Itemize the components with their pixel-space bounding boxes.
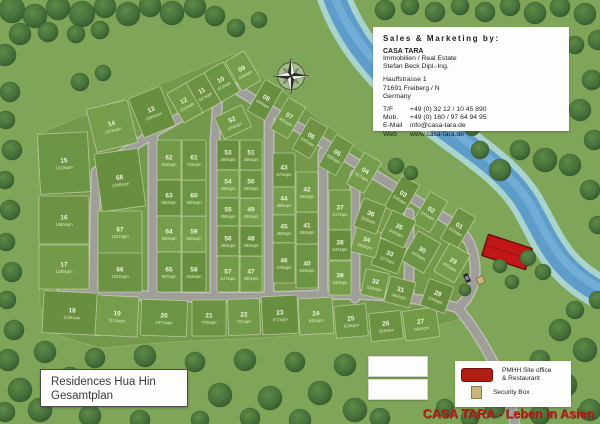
svg-text:550sqm: 550sqm	[162, 236, 177, 241]
svg-text:1971sqm: 1971sqm	[155, 320, 173, 326]
contact-row-web: Web www.casa-tara.de	[383, 131, 559, 139]
svg-text:41: 41	[303, 223, 311, 230]
lot-24[interactable]: 24642sqm	[298, 297, 334, 335]
lot-17[interactable]: 171185sqm	[39, 245, 89, 289]
lot-42[interactable]: 42685sqm	[296, 172, 318, 212]
lot-45[interactable]: 45456sqm	[273, 215, 295, 243]
lot-46[interactable]: 46476sqm	[273, 243, 295, 283]
lot-38[interactable]: 38541sqm	[329, 230, 351, 260]
svg-text:39: 39	[336, 273, 344, 280]
lot-23[interactable]: 23677sqm	[261, 295, 299, 335]
svg-text:729sqm: 729sqm	[187, 162, 202, 167]
svg-text:47: 47	[247, 269, 255, 276]
svg-text:58: 58	[190, 267, 198, 274]
lot-37[interactable]: 37617sqm	[329, 190, 351, 230]
svg-text:24: 24	[312, 310, 320, 317]
svg-text:818sqm: 818sqm	[162, 162, 177, 167]
svg-text:1210sqm: 1210sqm	[55, 165, 73, 171]
svg-text:51: 51	[247, 150, 255, 157]
svg-text:642sqm: 642sqm	[309, 318, 325, 324]
lot-59[interactable]: 59550sqm	[182, 216, 206, 252]
lot-15[interactable]: 151210sqm	[37, 132, 90, 195]
svg-text:779sqm: 779sqm	[202, 320, 217, 325]
svg-text:57: 57	[224, 269, 232, 276]
svg-text:1034sqm: 1034sqm	[111, 274, 129, 279]
svg-text:65: 65	[165, 267, 173, 274]
blank-panel-2	[368, 379, 428, 400]
svg-text:18: 18	[68, 307, 76, 314]
lot-48[interactable]: 48455sqm	[240, 226, 262, 256]
lot-66[interactable]: 661034sqm	[98, 252, 142, 292]
svg-text:22: 22	[240, 311, 248, 318]
lot-54[interactable]: 54456sqm	[217, 170, 239, 198]
sales-heading: Sales & Marketing by:	[383, 34, 559, 43]
svg-text:1156sqm: 1156sqm	[63, 315, 81, 321]
contact-value: +49 (0) 160 / 97 64 94 95	[410, 114, 487, 122]
legend-label-security: Security Box	[493, 389, 530, 397]
site-plan-canvas: 01532sqm02545sqm03546sqm04567sqm05599sqm…	[0, 0, 600, 424]
svg-text:19: 19	[113, 310, 121, 317]
contact-label: E-Mail	[383, 122, 410, 130]
svg-text:66: 66	[116, 267, 124, 274]
svg-text:26: 26	[382, 320, 390, 328]
svg-text:21: 21	[205, 313, 213, 320]
lot-67[interactable]: 671037sqm	[98, 211, 142, 253]
svg-text:46: 46	[280, 258, 288, 265]
lot-39[interactable]: 39533sqm	[329, 261, 351, 295]
svg-text:550sqm: 550sqm	[162, 200, 177, 205]
contact-row-phone: T/F +49 (0) 32 12 / 10 45 890	[383, 106, 559, 114]
svg-text:465sqm: 465sqm	[244, 276, 259, 281]
sales-marketing-panel: Sales & Marketing by: CASA TARA Immobili…	[373, 27, 569, 131]
lot-27[interactable]: 27564sqm	[402, 307, 440, 341]
svg-text:45: 45	[280, 224, 288, 231]
contact-row-email: E-Mail info@casa-tara.de	[383, 122, 559, 130]
contact-value[interactable]: info@casa-tara.de	[410, 122, 466, 130]
lot-26[interactable]: 26565sqm	[369, 310, 404, 341]
lot-68[interactable]: 681240sqm	[94, 148, 146, 212]
svg-text:1037sqm: 1037sqm	[111, 234, 129, 239]
contact-label: T/F	[383, 106, 410, 114]
address-line1: Hauffstrasse 1	[383, 76, 559, 84]
address-line3: Germany	[383, 93, 559, 101]
lot-62[interactable]: 62818sqm	[157, 140, 181, 180]
legend-panel: PMHH Site office & Restaurant Security B…	[455, 361, 571, 407]
lot-63[interactable]: 63550sqm	[157, 180, 181, 216]
lot-21[interactable]: 21779sqm	[192, 300, 226, 336]
svg-text:62: 62	[165, 155, 173, 162]
lot-60[interactable]: 60550sqm	[182, 180, 206, 216]
svg-text:56: 56	[224, 236, 232, 243]
lot-16[interactable]: 161860sqm	[39, 196, 89, 244]
lot-50[interactable]: 50455sqm	[240, 170, 262, 198]
svg-text:455sqm: 455sqm	[244, 214, 259, 219]
svg-text:25: 25	[347, 315, 355, 323]
svg-text:44: 44	[280, 196, 288, 203]
svg-text:541sqm: 541sqm	[333, 247, 348, 252]
address-line2: 71691 Freiberg / N	[383, 85, 559, 93]
lot-25[interactable]: 25616sqm	[334, 304, 369, 339]
svg-text:1113sqm: 1113sqm	[108, 318, 125, 324]
svg-text:456sqm: 456sqm	[221, 186, 236, 191]
svg-text:17: 17	[60, 262, 68, 269]
company-line2: Stefan Beck Dipl.-Ing.	[383, 63, 559, 71]
svg-text:20: 20	[160, 312, 168, 319]
svg-text:533sqm: 533sqm	[333, 280, 348, 285]
company-name: CASA TARA	[383, 48, 559, 55]
lot-18[interactable]: 181156sqm	[42, 291, 102, 336]
svg-text:67: 67	[116, 227, 124, 234]
lot-65[interactable]: 65567sqm	[157, 252, 181, 292]
svg-text:61: 61	[190, 155, 198, 162]
svg-text:567sqm: 567sqm	[162, 274, 177, 279]
svg-text:456sqm: 456sqm	[221, 214, 236, 219]
lot-57[interactable]: 57547sqm	[217, 256, 239, 292]
svg-text:489sqm: 489sqm	[221, 243, 236, 248]
svg-text:685sqm: 685sqm	[300, 194, 315, 199]
lot-43[interactable]: 43574sqm	[273, 153, 295, 187]
svg-text:550sqm: 550sqm	[187, 200, 202, 205]
svg-text:16: 16	[60, 215, 68, 222]
svg-text:63: 63	[165, 193, 173, 200]
svg-text:476sqm: 476sqm	[277, 265, 292, 270]
lot-49[interactable]: 49455sqm	[240, 198, 262, 226]
contact-label: Web	[383, 131, 410, 139]
svg-text:37: 37	[336, 205, 344, 212]
legend-item-security-box: Security Box	[461, 386, 565, 399]
svg-text:547sqm: 547sqm	[221, 276, 236, 281]
lot-44[interactable]: 44456sqm	[273, 187, 295, 215]
company-line1: Immobilien / Real Estate	[383, 55, 559, 63]
svg-text:55: 55	[224, 207, 232, 214]
svg-text:53: 53	[224, 150, 232, 157]
svg-text:456sqm: 456sqm	[277, 231, 292, 236]
svg-text:574sqm: 574sqm	[277, 172, 292, 177]
plan-title-line2: Gesamtplan	[51, 389, 177, 403]
svg-text:42: 42	[303, 187, 311, 194]
lot-47[interactable]: 47465sqm	[240, 256, 262, 292]
svg-text:456sqm: 456sqm	[277, 203, 292, 208]
lot-51[interactable]: 51455sqm	[240, 140, 262, 170]
lot-53[interactable]: 53456sqm	[217, 140, 239, 170]
svg-text:40: 40	[303, 261, 311, 268]
svg-text:48: 48	[247, 236, 255, 243]
contact-value[interactable]: www.casa-tara.de	[410, 131, 464, 139]
lot-19[interactable]: 191113sqm	[95, 295, 139, 337]
svg-text:49: 49	[247, 207, 255, 214]
svg-text:618sqm: 618sqm	[187, 274, 202, 279]
svg-text:550sqm: 550sqm	[187, 236, 202, 241]
svg-text:15: 15	[60, 157, 68, 164]
svg-text:23: 23	[276, 309, 284, 316]
legend-item-site-office: PMHH Site office & Restaurant	[461, 367, 565, 382]
lot-56[interactable]: 56489sqm	[217, 226, 239, 256]
svg-text:455sqm: 455sqm	[244, 243, 259, 248]
lot-55[interactable]: 55456sqm	[217, 198, 239, 226]
lot-32[interactable]: 32510sqm	[361, 269, 390, 299]
site-office-swatch	[461, 368, 493, 382]
svg-text:1185sqm: 1185sqm	[56, 269, 73, 274]
lot-41[interactable]: 41556sqm	[296, 212, 318, 244]
plan-title-line1: Residences Hua Hin	[51, 375, 177, 389]
lot-22[interactable]: 22721sqm	[227, 298, 260, 335]
svg-text:54: 54	[224, 179, 232, 186]
lot-58[interactable]: 58618sqm	[182, 252, 206, 292]
svg-text:455sqm: 455sqm	[244, 186, 259, 191]
svg-text:64: 64	[165, 229, 173, 236]
legend-label-site-office: PMHH Site office & Restaurant	[502, 367, 551, 382]
contact-row-mobile: Mob. +49 (0) 160 / 97 64 94 95	[383, 114, 559, 122]
svg-text:455sqm: 455sqm	[244, 157, 259, 162]
contact-value: +49 (0) 32 12 / 10 45 890	[410, 106, 487, 114]
svg-text:59: 59	[190, 229, 198, 236]
svg-text:43: 43	[280, 165, 288, 172]
svg-text:617sqm: 617sqm	[333, 212, 348, 217]
blank-panel-1	[368, 356, 428, 377]
svg-text:546sqm: 546sqm	[300, 268, 315, 273]
lot-40[interactable]: 40546sqm	[296, 244, 318, 288]
contact-label: Mob.	[383, 114, 410, 122]
svg-text:677sqm: 677sqm	[273, 317, 289, 323]
lot-64[interactable]: 64550sqm	[157, 216, 181, 252]
svg-text:38: 38	[336, 240, 344, 247]
svg-text:1860sqm: 1860sqm	[55, 222, 73, 227]
lot-20[interactable]: 201971sqm	[140, 299, 187, 337]
plan-title-panel: Residences Hua Hin Gesamtplan	[40, 369, 188, 407]
svg-text:556sqm: 556sqm	[300, 230, 315, 235]
lot-61[interactable]: 61729sqm	[182, 140, 206, 180]
svg-text:50: 50	[247, 179, 255, 186]
svg-text:721sqm: 721sqm	[237, 319, 253, 325]
svg-text:456sqm: 456sqm	[221, 157, 236, 162]
security-box-swatch	[471, 386, 482, 399]
footer-slogan: CASA TARA - Leben in Asien	[423, 407, 594, 421]
svg-text:60: 60	[190, 193, 198, 200]
